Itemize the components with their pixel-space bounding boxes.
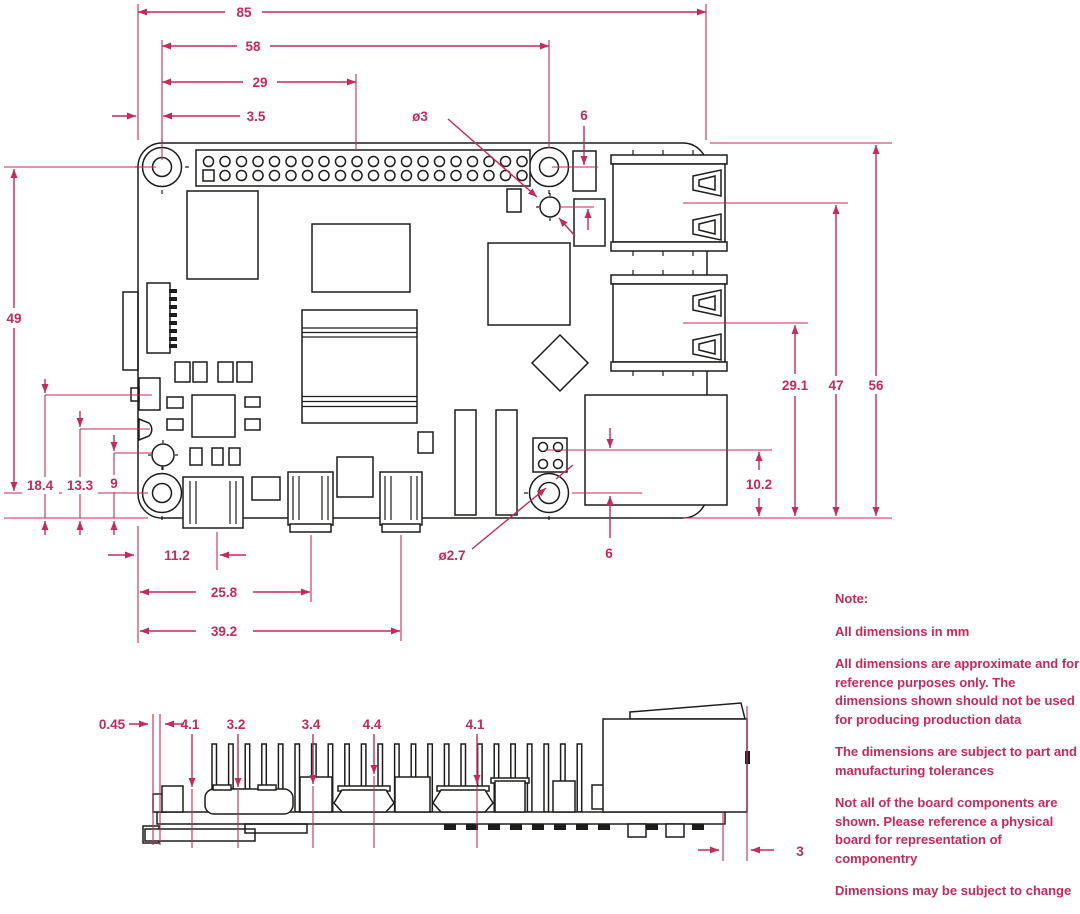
dim-side-h2: 3.2 [227,717,246,732]
pcb-hole-left [148,440,178,470]
gpio-header [196,150,530,186]
component [245,419,260,430]
chip [312,224,410,292]
board-top-view [123,140,727,532]
chip-wireless [488,243,570,325]
dim-conn2-y: 13.3 [67,478,94,493]
component-side [491,778,529,812]
dim-usbc-center: 11.2 [164,548,190,563]
note-line: All dimensions are approximate and for r… [835,655,1080,730]
camera-connector [455,410,476,515]
dim-hole-inset: 3.5 [247,109,266,124]
dim-hole-dia-top: ø3 [412,109,428,124]
component [229,448,240,465]
dim-hole-offset-top: 6 [580,108,588,123]
component [167,419,183,430]
dim-side-h3: 3.4 [302,717,321,732]
component [252,477,280,500]
component-side [395,777,430,812]
note-line: All dimensions in mm [835,623,1080,642]
dim-hole-span-h: 58 [245,39,261,54]
dim-usb1-center: 47 [828,378,843,393]
dim-side-h5: 4.1 [466,717,485,732]
dim-side-h1: 4.1 [181,717,200,732]
component-side [300,777,332,812]
chip-ram [187,191,258,279]
dim-usb-overhang: 3 [796,844,804,859]
notes-panel: Note: All dimensions in mm All dimension… [835,590,1080,914]
camera-connector-side [153,786,183,812]
chip-pmic [192,395,235,437]
left-edge-connector [123,292,138,370]
dim-hdmi2-center: 39.2 [211,624,237,639]
micro-hdmi-connector-2 [380,472,422,532]
note-line: Dimensions may be subject to change [835,882,1080,901]
usb-connector-side [603,703,750,812]
dim-hole-offset-bottom: 6 [605,546,613,561]
usb-c-side [205,785,293,814]
solder-pads [444,824,704,837]
component [245,397,260,407]
display-connector [496,410,517,515]
pcb-hole-top-right [536,193,560,221]
dim-board-width: 85 [236,5,252,20]
component [193,362,207,382]
component [167,397,183,408]
micro-hdmi-side-1 [334,786,394,812]
component-side [553,781,575,812]
mechanical-drawing-page: { "colors": { "accent": "#c7295a", "ink"… [0,0,1080,863]
component [212,448,223,465]
mounting-hole-bottom-left [143,466,190,520]
notes-title: Note: [835,590,1080,609]
component [190,448,202,465]
dim-hdmi1-center: 25.8 [211,585,238,600]
edge-component [131,378,160,410]
dim-board-height: 56 [868,378,884,393]
dim-usb2-center: 29.1 [782,378,809,393]
dim-gpio-center: 29 [252,75,267,90]
component-pad [507,189,521,212]
component [175,362,190,382]
chip-soc [302,310,417,423]
dim-sd-offset: 0.45 [99,717,126,732]
dim-conn1-y: 18.4 [27,478,54,493]
fpc-connector [147,283,177,353]
dim-hole-dia-bottom: ø2.7 [438,548,465,563]
dim-hole-span-v: 49 [6,311,21,326]
micro-hdmi-side-2 [433,786,493,812]
component-pad [574,199,605,246]
component [218,362,233,382]
component [337,457,373,497]
dim-conn3-y: 9 [110,476,118,491]
micro-hdmi-connector-1 [288,472,333,532]
component [237,362,252,382]
component [418,432,433,453]
usb-c-connector [183,477,243,528]
dimension-lines [4,4,892,861]
note-line: Not all of the board components are show… [835,794,1080,869]
note-line: The dimensions are subject to part and m… [835,743,1080,781]
dim-side-h4: 4.4 [363,717,382,732]
dim-eth-center: 10.2 [746,477,772,492]
poe-header [533,438,567,472]
chip-diamond [532,335,588,391]
